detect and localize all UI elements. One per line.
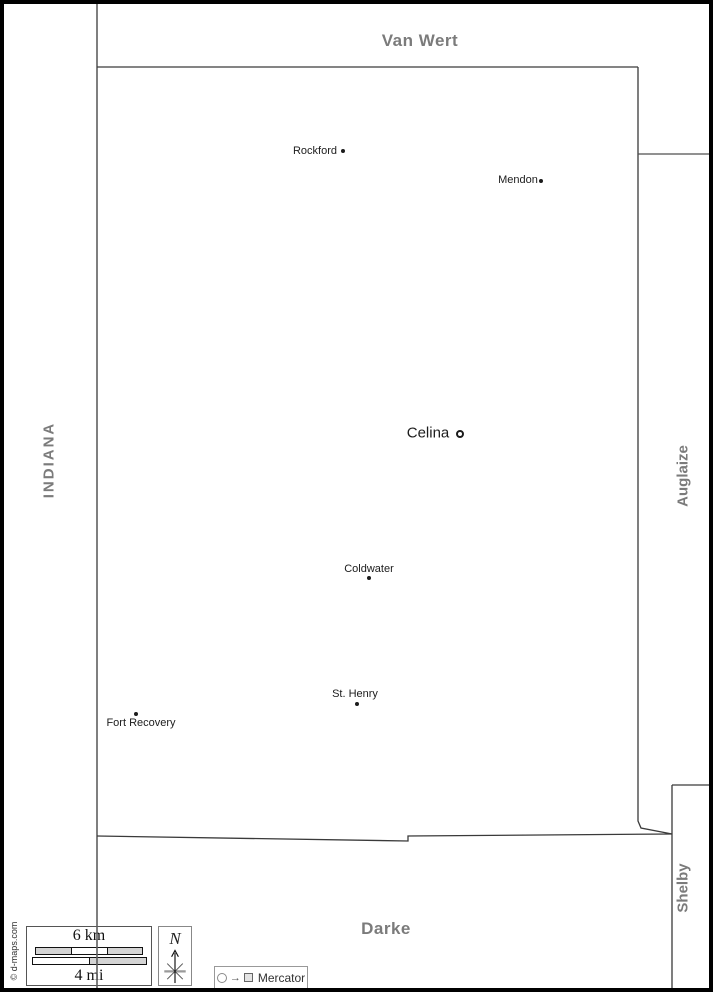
region-label-van-wert: Van Wert (382, 31, 458, 51)
city-dot-marker (134, 712, 138, 716)
city-dot-marker (341, 149, 345, 153)
copyright-credit: © d-maps.com (9, 922, 19, 981)
scale-mi-bar (32, 957, 147, 965)
scale-km-segment (36, 948, 71, 954)
north-label: N (169, 929, 180, 948)
compass-rose-icon (162, 948, 188, 985)
projection-legend-box: → Mercator (214, 966, 308, 989)
city-label: Fort Recovery (106, 717, 175, 729)
city-label: Rockford (293, 145, 337, 157)
boundary-lines-layer (4, 4, 713, 992)
region-label-indiana: INDIANA (41, 422, 58, 499)
scale-km-segment (107, 948, 142, 954)
projection-name: Mercator (258, 971, 305, 985)
city-label: Coldwater (344, 563, 394, 575)
city-label: Mendon (498, 174, 538, 186)
region-label-darke: Darke (361, 919, 411, 939)
city-dot-marker (355, 702, 359, 706)
scale-mi-segment (33, 958, 89, 964)
north-compass-box: N (158, 926, 192, 986)
arrow-right-icon: → (230, 973, 241, 983)
globe-circle-icon (217, 973, 227, 983)
scale-bar-box: 6 km 4 mi (26, 926, 152, 986)
scale-km-label: 6 km (73, 928, 105, 944)
scale-km-segment (71, 948, 106, 954)
county-seat-marker (456, 430, 464, 438)
scale-mi-label: 4 mi (75, 968, 104, 984)
city-dot-marker (367, 576, 371, 580)
map-canvas: Van Wert INDIANA Auglaize Shelby Darke R… (0, 0, 713, 992)
county-east-border (638, 67, 672, 834)
county-south-border (97, 834, 672, 841)
city-label: Celina (407, 425, 450, 442)
scale-mi-segment (89, 958, 146, 964)
city-label: St. Henry (332, 688, 378, 700)
city-dot-marker (539, 179, 543, 183)
scale-km-bar (35, 947, 143, 955)
region-label-shelby: Shelby (675, 863, 692, 912)
region-label-auglaize: Auglaize (675, 445, 692, 507)
flat-map-square-icon (244, 973, 253, 982)
